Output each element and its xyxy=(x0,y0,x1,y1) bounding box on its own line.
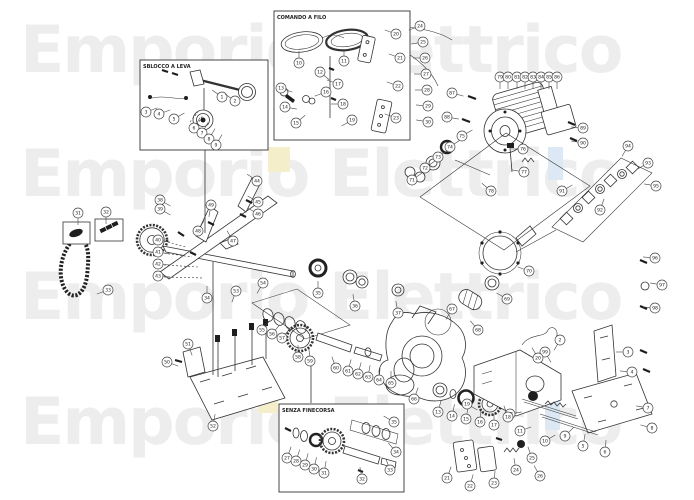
part-number: 42 xyxy=(155,262,161,268)
part-number: 18 xyxy=(340,102,346,108)
part-number: 31 xyxy=(75,211,81,217)
part-number: 7 xyxy=(201,131,204,137)
part-number: 84 xyxy=(538,75,544,81)
part-number: 86 xyxy=(554,75,560,81)
part-number: 67 xyxy=(449,307,455,313)
part-number: 1 xyxy=(221,95,224,101)
part-number: 87 xyxy=(449,91,455,97)
part-number: 23 xyxy=(491,481,497,487)
right-hardware xyxy=(640,260,649,309)
part-callout: 88 xyxy=(442,112,459,122)
part-number: 93 xyxy=(645,161,651,167)
part-number: 8 xyxy=(208,137,211,143)
part-callout: 3 xyxy=(616,347,633,357)
part-number: 21 xyxy=(444,476,450,482)
part-number: 37 xyxy=(395,311,401,317)
part-number: 83 xyxy=(530,75,536,81)
part-number: 8 xyxy=(651,426,654,432)
part-number: 10 xyxy=(296,61,302,67)
part-callout: 9 xyxy=(560,428,573,441)
part-callout: 34 xyxy=(202,286,212,303)
part-number: 6 xyxy=(604,450,607,456)
part-number: 11 xyxy=(517,429,523,435)
part-number: 15 xyxy=(293,121,299,127)
part-number: 64 xyxy=(376,378,382,384)
part-number: 41 xyxy=(155,250,161,256)
part-number: 72 xyxy=(422,166,428,172)
part-number: 11 xyxy=(341,59,347,65)
part-callout: 21 xyxy=(442,467,452,483)
part-number: 40 xyxy=(155,238,161,244)
part-number: 5 xyxy=(173,117,176,123)
part-number: 17 xyxy=(491,423,497,429)
part-number: 2 xyxy=(559,338,562,344)
part-number: 54 xyxy=(260,281,266,287)
part-number: 65 xyxy=(388,381,394,387)
part-callout: 23 xyxy=(489,471,499,488)
part-number: 7 xyxy=(647,406,650,412)
part-callout: 39 xyxy=(155,204,170,215)
part-number: 81 xyxy=(514,75,520,81)
part-callout: 24 xyxy=(511,458,521,475)
part-callout: 67 xyxy=(446,304,457,319)
part-number: 20 xyxy=(535,356,541,362)
part-number: 3 xyxy=(145,110,148,116)
part-number: 95 xyxy=(653,184,659,190)
part-number: 2 xyxy=(234,99,237,105)
part-number: 70 xyxy=(526,269,532,275)
part-callout: 50 xyxy=(162,357,178,367)
part-number: 25 xyxy=(420,40,426,46)
part-callout: 15 xyxy=(461,407,471,424)
part-callout: 95 xyxy=(644,181,661,191)
part-number: 22 xyxy=(395,84,401,90)
part-number: 75 xyxy=(459,134,465,140)
part-number: 46 xyxy=(255,212,261,218)
part-callout: 59 xyxy=(305,349,315,366)
part-number: 51 xyxy=(185,342,191,348)
part-number: 27 xyxy=(423,72,429,78)
part-number: 12 xyxy=(317,70,323,76)
part-callout: 38 xyxy=(155,195,170,206)
part-number: 43 xyxy=(155,274,161,280)
part-number: 99 xyxy=(542,350,548,356)
part-number: 97 xyxy=(659,283,665,289)
part-callout: 73 xyxy=(433,150,448,162)
part-number: 60 xyxy=(333,366,339,372)
part-number: 59 xyxy=(307,359,313,365)
part-number: 49 xyxy=(208,203,214,209)
part-number: 62 xyxy=(355,372,361,378)
part-number: 88 xyxy=(444,115,450,121)
part-callout: 28 xyxy=(415,85,432,95)
part-callout: 53 xyxy=(231,286,241,302)
part-callout: 4 xyxy=(620,367,637,377)
part-number: 4 xyxy=(631,370,634,376)
part-number: 25 xyxy=(529,456,535,462)
part-callout: 93 xyxy=(638,158,653,169)
part-number: 3 xyxy=(627,350,630,356)
part-number: 19 xyxy=(464,402,470,408)
part-number: 73 xyxy=(435,155,441,161)
part-number: 4 xyxy=(158,112,161,118)
chain-and-links xyxy=(61,219,123,296)
part-number: 21 xyxy=(397,56,403,62)
part-number: 17 xyxy=(335,82,341,88)
parts-diagram-page: Emporio ElettricoEmporio ElettricoEmpori… xyxy=(0,0,694,500)
part-number: 71 xyxy=(409,178,415,184)
part-number: 80 xyxy=(505,75,511,81)
part-number: 68 xyxy=(475,328,481,334)
part-callout: 26 xyxy=(534,466,545,481)
part-number: 45 xyxy=(255,200,261,206)
part-number: 55 xyxy=(259,328,265,334)
part-callout: 70 xyxy=(518,266,534,276)
part-number: 58 xyxy=(295,355,301,361)
part-number: 47 xyxy=(230,239,236,245)
part-number: 79 xyxy=(497,75,503,81)
part-number: 52 xyxy=(210,424,216,430)
part-callout: 5 xyxy=(578,434,588,451)
part-callout: 26 xyxy=(413,53,430,63)
inset-label-comando: COMANDO A FILO xyxy=(277,15,326,21)
part-callout: 97 xyxy=(650,280,667,290)
part-callout: 86 xyxy=(552,72,562,89)
part-number: 23 xyxy=(393,116,399,122)
part-number: 89 xyxy=(580,126,586,132)
inset-label-finecorsa: SENZA FINECORSA xyxy=(282,408,335,414)
part-callout: 36 xyxy=(350,294,360,311)
part-callout: 62 xyxy=(353,362,363,379)
part-number: 34 xyxy=(204,296,210,302)
part-number: 15 xyxy=(463,417,469,423)
part-callout: 37 xyxy=(393,301,403,318)
part-callout: 13 xyxy=(433,400,443,417)
part-callout: 35 xyxy=(313,281,323,298)
part-number: 85 xyxy=(546,75,552,81)
part-callout: 87 xyxy=(447,88,464,98)
part-callout: 25 xyxy=(527,447,537,463)
part-callout: 61 xyxy=(343,359,353,376)
part-number: 27 xyxy=(284,456,290,462)
part-number: 31 xyxy=(321,471,327,477)
part-callout: 30 xyxy=(416,117,433,127)
part-number: 53 xyxy=(233,289,239,295)
part-callout: 77 xyxy=(512,167,529,177)
part-number: 69 xyxy=(504,297,510,303)
part-number: 92 xyxy=(597,208,603,214)
inset-label-sblocco: SBLOCCO A LEVA xyxy=(143,64,191,70)
part-number: 38 xyxy=(157,198,163,204)
part-number: 56 xyxy=(269,332,275,338)
part-number: 22 xyxy=(467,484,473,490)
part-number: 5 xyxy=(582,444,585,450)
part-number: 14 xyxy=(282,105,288,111)
part-number: 29 xyxy=(302,463,308,469)
part-number: 10 xyxy=(542,439,548,445)
part-number: 50 xyxy=(164,360,170,366)
seal-kit-strip xyxy=(516,158,652,252)
part-callout: 27 xyxy=(414,69,431,79)
part-number: 35 xyxy=(391,420,397,426)
part-callout: 68 xyxy=(470,321,483,335)
part-number: 78 xyxy=(488,189,494,195)
part-number: 19 xyxy=(349,118,355,124)
part-number: 16 xyxy=(477,420,483,426)
part-number: 28 xyxy=(424,88,430,94)
part-callout: 54 xyxy=(257,278,268,293)
part-number: 90 xyxy=(580,141,586,147)
part-number: 76 xyxy=(520,147,526,153)
part-number: 32 xyxy=(359,477,365,483)
part-number: 34 xyxy=(393,450,399,456)
part-callout: 80 xyxy=(503,72,513,89)
exploded-diagram: SBLOCCO A LEVA COMANDO A FILO xyxy=(0,0,694,500)
part-callout: 14 xyxy=(447,404,457,421)
part-number: 24 xyxy=(417,24,423,30)
part-callout: 6 xyxy=(600,440,610,457)
part-number: 33 xyxy=(105,288,111,294)
part-number: 32 xyxy=(103,210,109,216)
part-number: 33 xyxy=(387,468,393,474)
part-number: 26 xyxy=(422,56,428,62)
part-callout: 60 xyxy=(331,357,341,373)
part-callout: 24 xyxy=(409,21,425,31)
part-callout: 69 xyxy=(497,293,512,304)
part-callout: 2 xyxy=(554,335,565,350)
part-number: 66 xyxy=(411,397,417,403)
part-number: 57 xyxy=(279,336,285,342)
part-number: 96 xyxy=(652,256,658,262)
part-number: 63 xyxy=(365,375,371,381)
part-callout: 10 xyxy=(540,435,555,446)
part-number: 61 xyxy=(345,369,351,375)
part-number: 77 xyxy=(521,170,527,176)
oring-row xyxy=(252,289,382,361)
part-callout: 19 xyxy=(462,399,477,410)
part-number: 29 xyxy=(425,104,431,110)
part-callout: 94 xyxy=(622,141,633,156)
part-number: 13 xyxy=(278,86,284,92)
part-number: 30 xyxy=(311,467,317,473)
part-number: 6 xyxy=(193,126,196,132)
part-number: 9 xyxy=(564,434,567,440)
part-callout: 17 xyxy=(489,413,499,430)
part-number: 91 xyxy=(559,189,565,195)
part-number: 9 xyxy=(215,143,218,149)
part-number: 39 xyxy=(157,207,163,213)
part-number: 98 xyxy=(652,306,658,312)
part-number: 48 xyxy=(195,229,201,235)
part-callout: 48 xyxy=(193,221,204,236)
part-number: 13 xyxy=(435,410,441,416)
part-callout: 91 xyxy=(557,185,572,196)
part-number: 18 xyxy=(505,415,511,421)
part-callout: 78 xyxy=(482,183,496,196)
part-callout: 29 xyxy=(416,101,433,111)
part-number: 35 xyxy=(315,291,321,297)
part-callout: 22 xyxy=(465,474,475,491)
part-callout: 75 xyxy=(457,130,472,141)
part-callout: 63 xyxy=(363,365,373,382)
part-callout: 11 xyxy=(515,426,531,436)
part-number: 74 xyxy=(447,145,453,151)
l-bracket xyxy=(474,350,561,416)
part-callout: 33 xyxy=(97,285,113,295)
part-number: 20 xyxy=(393,32,399,38)
part-number: 82 xyxy=(522,75,528,81)
part-number: 36 xyxy=(352,304,358,310)
part-number: 26 xyxy=(537,474,543,480)
part-number: 28 xyxy=(293,459,299,465)
part-number: 14 xyxy=(449,414,455,420)
part-number: 16 xyxy=(323,90,329,96)
part-callout: 8 xyxy=(640,423,657,433)
part-number: 44 xyxy=(254,179,260,185)
part-number: 30 xyxy=(425,120,431,126)
part-callout: 25 xyxy=(411,37,428,47)
part-number: 94 xyxy=(625,144,631,150)
part-number: 24 xyxy=(513,468,519,474)
